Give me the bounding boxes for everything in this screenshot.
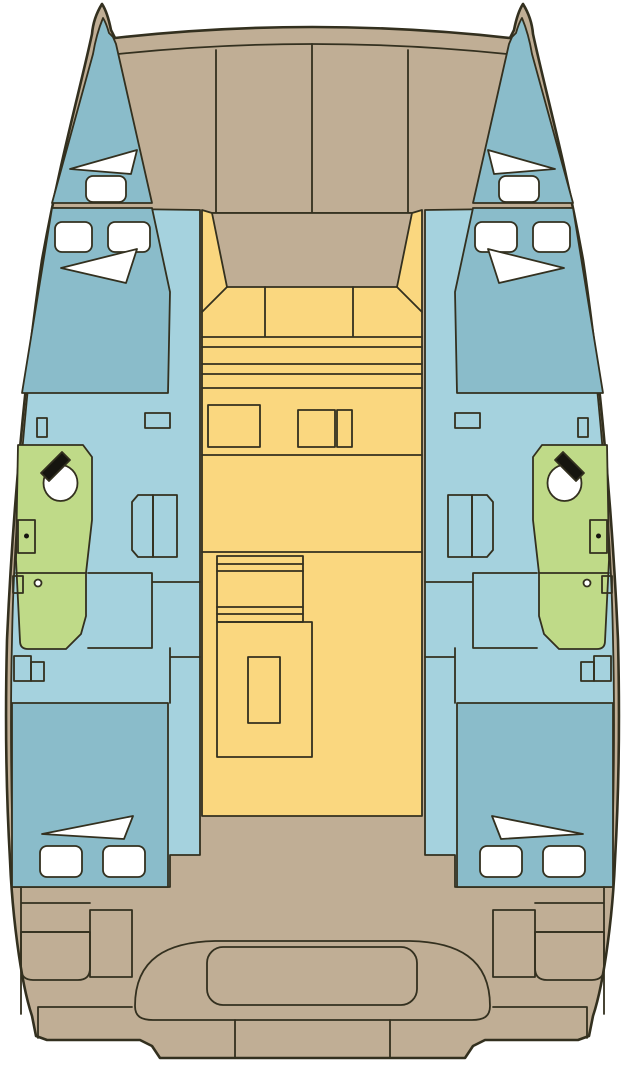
bow-hatch-icon xyxy=(86,176,126,202)
forward-cabin-hatch-icon xyxy=(108,222,150,252)
forward-cabin-hatch-icon xyxy=(55,222,92,252)
floor-plan-svg xyxy=(0,0,625,1080)
aft-cabin-hatch-icon xyxy=(40,846,82,877)
cockpit-bench-cushion xyxy=(207,947,417,1005)
drain-icon xyxy=(35,580,42,587)
port-head-group xyxy=(13,445,92,649)
aft-cabin-hatch-icon xyxy=(103,846,145,877)
windscreen xyxy=(212,213,412,287)
boat-floor-plan xyxy=(0,0,625,1080)
toilet-dot-icon xyxy=(24,534,29,539)
